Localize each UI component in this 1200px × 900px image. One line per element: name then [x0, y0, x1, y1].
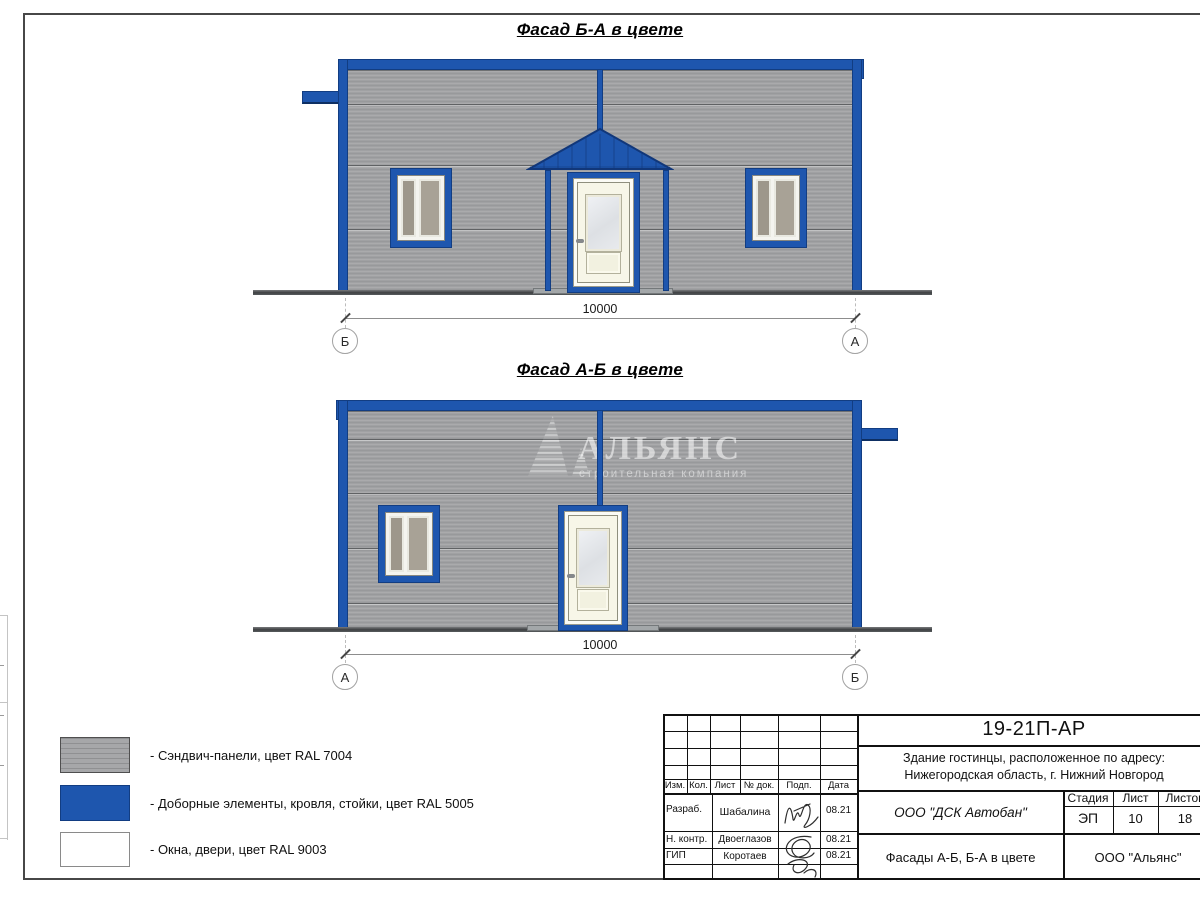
extension-line	[345, 298, 346, 328]
dimension-value: 10000	[560, 302, 640, 316]
window-pane-right	[774, 179, 796, 237]
axis-marker-b: Б	[842, 664, 868, 690]
door-frame	[564, 511, 622, 625]
window-pane-left	[401, 179, 416, 237]
legend-swatch-trim	[60, 785, 130, 821]
gutter-outlet-right	[860, 428, 898, 441]
entrance-door	[567, 172, 640, 293]
axis-marker-b: Б	[332, 328, 358, 354]
signer-role: ГИП	[666, 850, 686, 861]
signer-role: Н. контр.	[666, 834, 707, 845]
door-leaf	[577, 182, 630, 283]
canopy-post-left	[545, 170, 551, 291]
rev-header-kol: Кол.	[687, 780, 710, 791]
roof-parapet-trim	[338, 59, 862, 70]
door-handle-icon	[567, 574, 575, 578]
title-block-line	[663, 864, 857, 865]
signer-name: Двоеглазов	[713, 834, 777, 845]
window-right	[745, 168, 807, 248]
dimension-line	[345, 654, 855, 655]
extension-line	[855, 635, 856, 663]
door-bottom-panel	[586, 252, 621, 274]
corner-post-left	[338, 400, 348, 632]
margin-stamp-line	[7, 615, 8, 840]
door-glazing	[586, 195, 621, 251]
door-handle-icon	[576, 239, 584, 243]
margin-stamp-line	[0, 838, 8, 839]
sheets-header: Листов	[1158, 791, 1200, 805]
corner-post-left	[338, 59, 348, 293]
margin-stamp-tick	[0, 765, 4, 766]
title-block-line	[1063, 806, 1200, 807]
axis-marker-a: А	[842, 328, 868, 354]
sheet-number: 10	[1113, 811, 1158, 826]
window-frame	[397, 175, 445, 241]
signer-name: Шабалина	[713, 806, 777, 818]
stage-header: Стадия	[1063, 791, 1113, 805]
signer-role: Разраб.	[666, 804, 702, 815]
extension-line	[855, 298, 856, 328]
facade-bottom-title: Фасад А-Б в цвете	[400, 360, 800, 380]
downspout-pipe	[597, 411, 603, 506]
porch-canopy-icon	[526, 126, 674, 172]
organization-name: ООО "Альянс"	[1065, 835, 1200, 879]
entrance-door	[558, 505, 628, 631]
signature-icon	[777, 831, 825, 879]
legend-label: - Доборные элементы, кровля, стойки, цве…	[150, 796, 474, 811]
frame-left-border	[23, 13, 25, 880]
drawing-sheet: Фасад Б-А в цвете	[0, 0, 1200, 900]
rev-header-list: Лист	[710, 780, 740, 791]
window-pane-right	[419, 179, 441, 237]
title-block-line	[663, 848, 857, 849]
watermark-tagline: строительная компания	[579, 468, 748, 480]
legend-swatch-windows	[60, 832, 130, 867]
rev-header-izm: Изм.	[663, 780, 687, 791]
door-frame	[573, 178, 634, 287]
margin-stamp-line	[0, 615, 8, 616]
stage-value: ЭП	[1063, 810, 1113, 826]
signer-date: 08.21	[821, 850, 856, 861]
corner-post-right	[852, 59, 862, 293]
sheet-name: Фасады А-Б, Б-А в цвете	[858, 835, 1063, 879]
canopy-post-right	[663, 170, 669, 291]
dimension-line	[345, 318, 855, 319]
rev-header-data: Дата	[820, 780, 857, 791]
downspout-pipe	[597, 70, 603, 130]
window-frame	[752, 175, 800, 241]
doc-number: 19-21П-АР	[858, 718, 1200, 741]
project-address-line1: Здание гостинцы, расположенное по адресу…	[858, 751, 1200, 765]
title-block-line	[663, 748, 857, 749]
door-bottom-panel	[577, 589, 609, 611]
title-block-line	[857, 745, 1200, 747]
corner-post-right	[852, 400, 862, 632]
door-leaf	[568, 515, 618, 621]
window-pane-left	[756, 179, 771, 237]
window-left	[378, 505, 440, 583]
door-glazing	[577, 529, 609, 587]
signer-date: 08.21	[821, 805, 856, 816]
title-block-line	[663, 831, 857, 832]
dimension-value: 10000	[560, 638, 640, 652]
sheets-total: 18	[1158, 811, 1200, 826]
signature-icon	[781, 795, 821, 831]
rev-header-podp: Подп.	[778, 780, 820, 791]
frame-top-border	[23, 13, 1200, 15]
contractor-name: ООО "ДСК Автобан"	[858, 792, 1063, 832]
window-left	[390, 168, 452, 248]
signer-date: 08.21	[821, 834, 856, 845]
margin-stamp-tick	[0, 665, 4, 666]
gutter-outlet-left	[302, 91, 340, 104]
title-block-line	[663, 793, 857, 795]
window-frame	[385, 512, 433, 576]
extension-line	[345, 635, 346, 663]
title-block-line	[663, 765, 857, 766]
sheet-header: Лист	[1113, 791, 1158, 805]
title-block-line	[663, 731, 857, 732]
rev-header-doc: № док.	[740, 780, 778, 791]
legend-label: - Окна, двери, цвет RAL 9003	[150, 842, 327, 857]
roof-parapet-trim	[338, 400, 862, 411]
facade-top-title: Фасад Б-А в цвете	[400, 20, 800, 40]
legend-swatch-panels	[60, 737, 130, 773]
margin-stamp-line	[0, 702, 8, 703]
window-pane-left	[389, 516, 404, 572]
axis-marker-a: А	[332, 664, 358, 690]
signer-name: Коротаев	[713, 851, 777, 862]
window-pane-right	[407, 516, 429, 572]
project-address-line2: Нижегородская область, г. Нижний Новгоро…	[858, 768, 1200, 782]
legend-label: - Сэндвич-панели, цвет RAL 7004	[150, 748, 352, 763]
margin-stamp-tick	[0, 715, 4, 716]
